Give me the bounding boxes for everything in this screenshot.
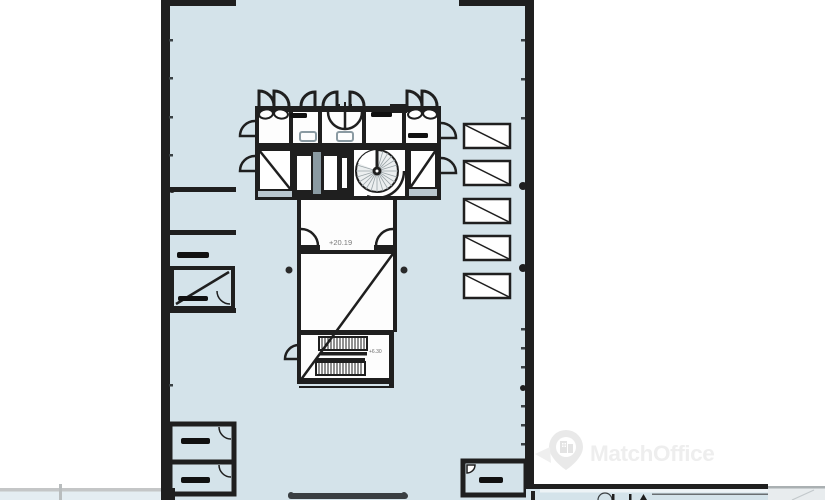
svg-text:+6.30: +6.30 — [369, 349, 382, 355]
svg-text:MatchOffice: MatchOffice — [590, 441, 714, 466]
svg-text:+20.19: +20.19 — [329, 238, 352, 247]
